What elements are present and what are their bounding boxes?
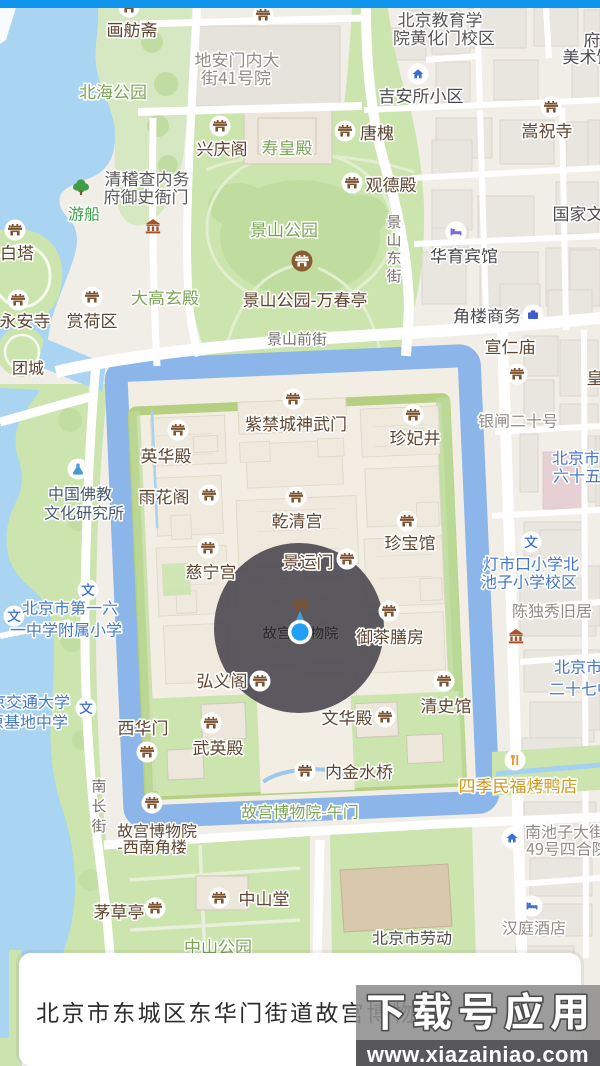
svg-text:www.xiazainiao.com: www.xiazainiao.com: [366, 1042, 589, 1066]
